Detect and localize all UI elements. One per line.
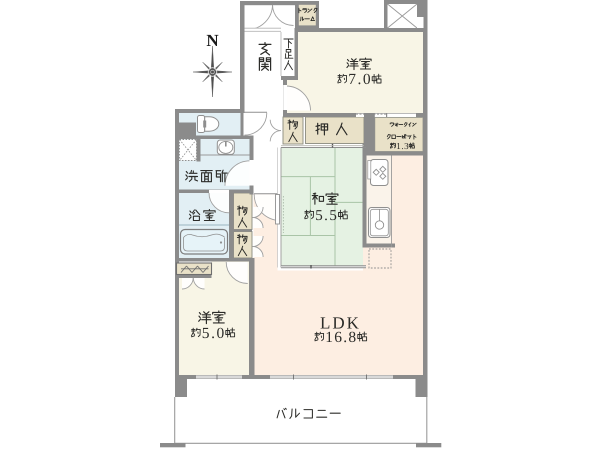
svg-text:5.5: 5.5 (315, 208, 337, 224)
svg-text:N: N (206, 31, 219, 50)
svg-text:1.3: 1.3 (396, 141, 409, 151)
svg-text:7.0: 7.0 (348, 71, 371, 88)
svg-text:5.0: 5.0 (202, 325, 225, 342)
svg-text:16.8: 16.8 (325, 329, 356, 346)
